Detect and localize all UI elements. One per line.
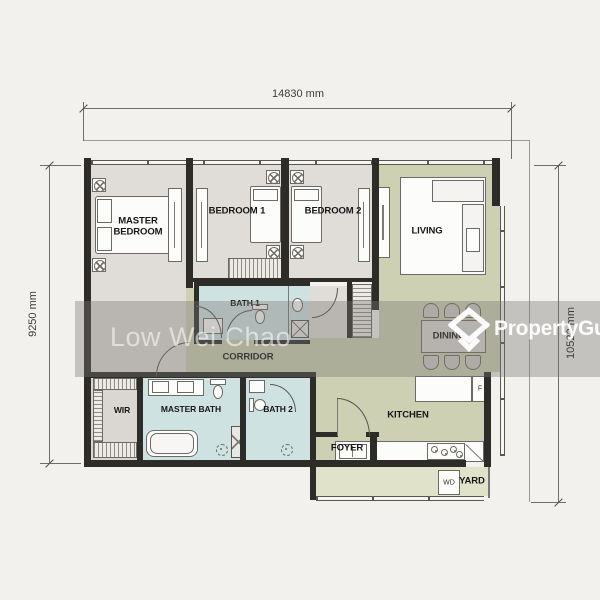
stove-burner-icon (441, 449, 448, 456)
bedroom2-wardrobe-handle (363, 202, 364, 248)
wall-wir-masterbath (137, 378, 143, 460)
wir-rail-hatch-top (93, 378, 137, 390)
wall-foyer-top-left (316, 432, 338, 437)
master-wardrobe (168, 188, 182, 262)
wir-label: WIR (114, 405, 130, 415)
kitchen-counter-top (415, 376, 472, 402)
downlight-icon (290, 245, 304, 259)
downlight-icon (266, 170, 280, 184)
bedroom1-wardrobe (196, 188, 208, 262)
bedroom1-bed-pillow (253, 189, 278, 201)
sofa-chaise (432, 180, 484, 202)
kitchen-label: KITCHEN (387, 409, 429, 420)
propertyguru-house-icon (447, 306, 491, 352)
master-bath-label: MASTER BATH (161, 404, 221, 414)
wall-kitchen-bottom (316, 460, 466, 467)
wall-foyer-kitchen (370, 437, 377, 460)
tv-console (378, 187, 390, 258)
dimension-line-top (83, 108, 512, 109)
bedroom1-label: BEDROOM 1 (209, 205, 266, 216)
wall-bath2-foyer (310, 372, 316, 467)
wall-master-bedroom1 (186, 158, 193, 288)
wall-bath1-top (194, 282, 310, 286)
dimension-ext-top-right (511, 102, 512, 159)
wall-kitchen-right (484, 372, 491, 467)
dimension-ext-left-bottom (40, 463, 81, 464)
downlight-icon (266, 245, 280, 259)
sofa-side-table (466, 228, 480, 252)
dimension-label-left: 9250 mm (27, 291, 39, 337)
wall-bedroom2-living (372, 158, 379, 310)
wall-kitchen-bottom-stub (484, 460, 491, 467)
wall-pillar-living (492, 158, 500, 206)
propertyguru-logo: PropertyGuru (447, 306, 600, 352)
shower-drain-icon (216, 444, 228, 456)
wall-masterbath-bath2 (240, 378, 246, 460)
downlight-icon (290, 170, 304, 184)
wir-rail-hatch-bottom (93, 442, 137, 458)
wall-yard-right (488, 467, 490, 498)
downlight-icon (92, 178, 106, 192)
wall-lower-block-bottom (84, 460, 316, 467)
bath2-sink (249, 380, 265, 393)
bathtub-inner (150, 433, 194, 454)
master-bedroom-label: MASTER BEDROOM (106, 216, 170, 239)
fridge-label: F (478, 386, 482, 393)
downlight-icon (92, 258, 106, 272)
dimension-line-left (49, 165, 50, 463)
washer-dryer-label: WD (443, 480, 455, 487)
floor-plan-image: 14830 mm 9250 mm 10522 mm (0, 0, 600, 600)
stove-burner-icon (431, 446, 438, 453)
bedroom2-wardrobe (358, 188, 370, 262)
bedroom2-bed-pillow (294, 189, 319, 201)
boundary-line-top (83, 140, 530, 141)
shower-drain-icon (281, 444, 293, 456)
bath2-label: BATH 2 (263, 404, 292, 414)
yard-label: YARD (459, 475, 485, 486)
dimension-ext-left-top (40, 165, 81, 166)
master-bath-basin (177, 381, 194, 393)
foyer-label: FOYER (331, 442, 363, 453)
living-label: LIVING (411, 225, 442, 236)
dimension-ext-right-top (534, 165, 566, 166)
wir-rail-hatch-left (93, 390, 103, 442)
window-wall-top (91, 160, 492, 165)
master-bath-basin (152, 381, 169, 393)
watermark-agent-name: Low Wei Chao (110, 322, 291, 353)
bedroom1-wardrobe-handle (201, 202, 202, 248)
tv-screen (382, 205, 384, 240)
bedroom2-label: BEDROOM 2 (305, 205, 362, 216)
wall-bedroom1-bedroom2 (281, 158, 289, 282)
master-wardrobe-handle (174, 202, 175, 248)
dimension-label-top: 14830 mm (272, 88, 324, 100)
dimension-ext-right-bottom (531, 502, 566, 503)
bedroom1-closet-hatch (228, 258, 282, 280)
master-bath-toilet-bowl (213, 385, 223, 399)
propertyguru-wordmark: PropertyGuru (494, 317, 600, 341)
window-wall-yard-bottom (316, 496, 484, 501)
stove-burner-icon (456, 451, 463, 458)
